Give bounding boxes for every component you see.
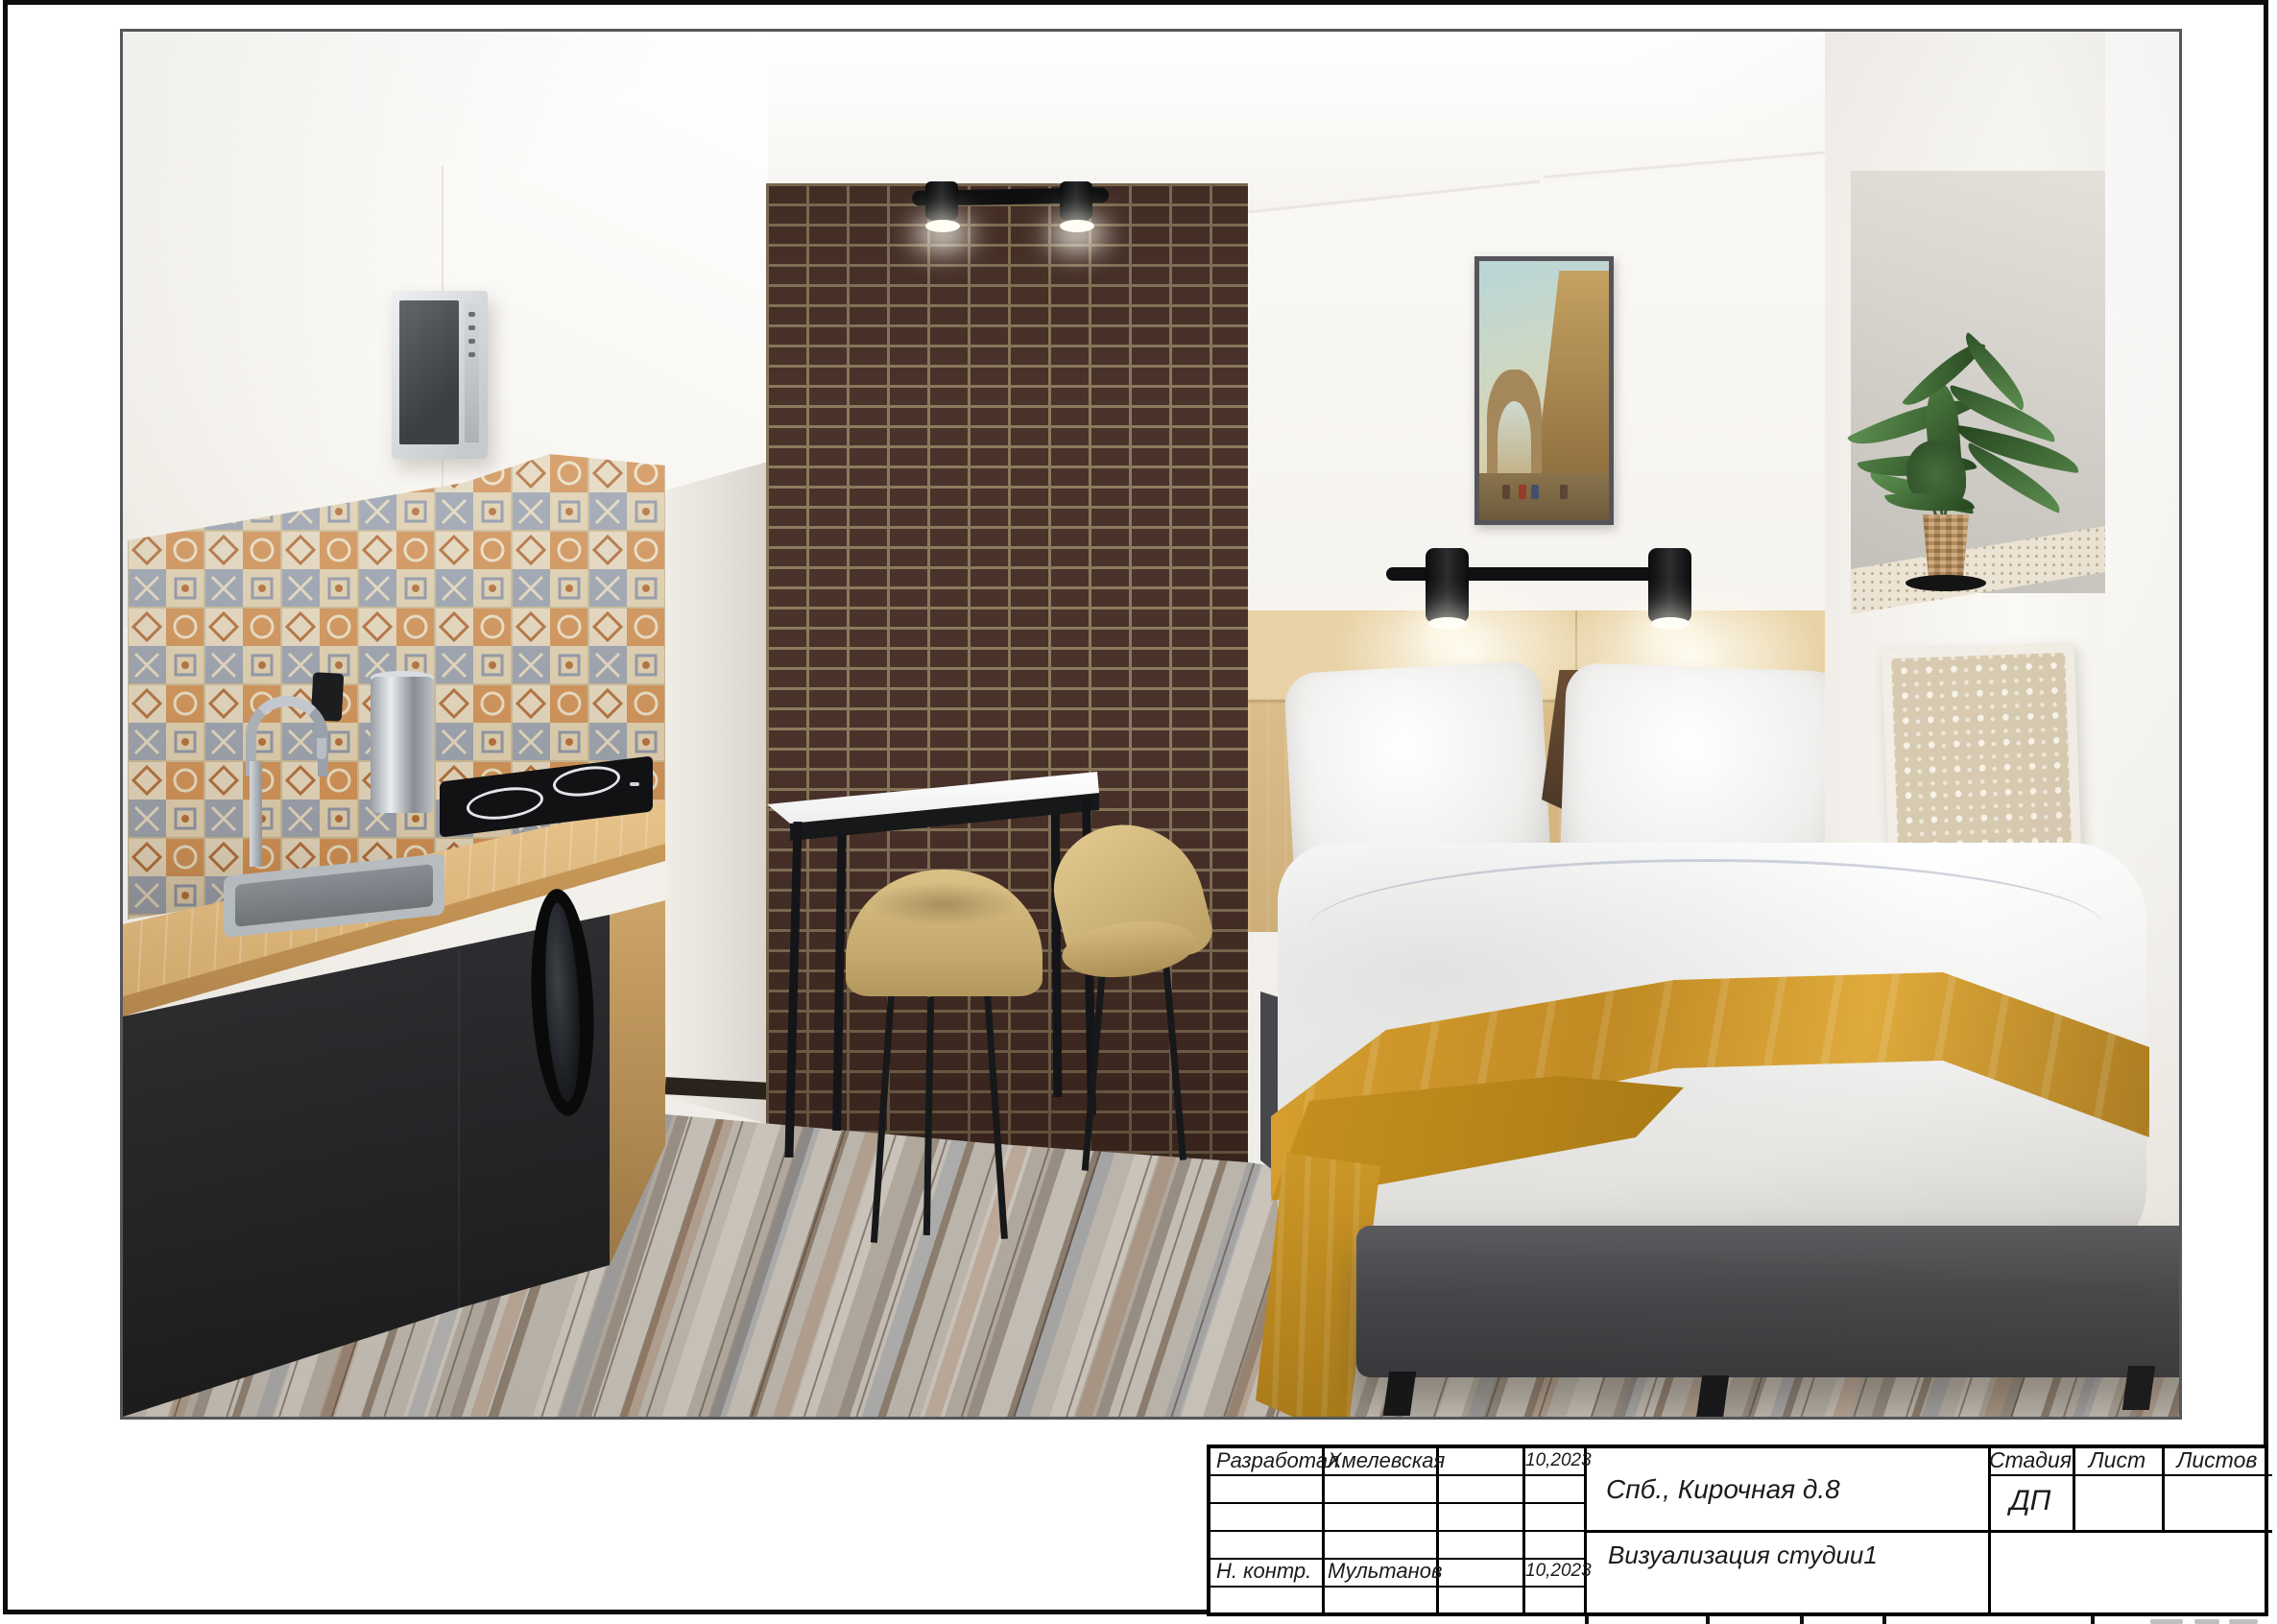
cut-row-tick bbox=[1585, 1615, 1589, 1624]
chair-left-shadow bbox=[867, 882, 1020, 926]
cut-row-tick bbox=[2091, 1615, 2095, 1624]
microwave-button bbox=[468, 312, 475, 317]
title-block-line bbox=[1210, 1586, 1584, 1588]
framed-painting bbox=[1474, 256, 1614, 525]
cut-text-fragment bbox=[2150, 1619, 2183, 1624]
kettle bbox=[371, 677, 434, 813]
cut-text-fragment bbox=[2229, 1619, 2258, 1624]
painting-figure bbox=[1560, 485, 1568, 499]
stage-header: Стадия bbox=[1988, 1448, 2073, 1474]
normcontrol-label: Н. контр. bbox=[1216, 1558, 1311, 1586]
spotlight-glow bbox=[1060, 220, 1094, 232]
normcontrol-name: Мультанов bbox=[1328, 1558, 1442, 1586]
painting-ground bbox=[1479, 473, 1609, 520]
title-block-line bbox=[1210, 1530, 1584, 1532]
painting-arch-opening bbox=[1498, 401, 1531, 479]
painting-figure bbox=[1519, 485, 1526, 499]
cut-text-fragment bbox=[2194, 1619, 2219, 1624]
drawing-sheet: Разработал Хмелевская 10,2023 Н. контр. … bbox=[0, 0, 2277, 1624]
corner-wall bbox=[665, 462, 768, 1124]
render-image bbox=[120, 29, 2182, 1420]
wall-lamp-spot bbox=[1426, 548, 1469, 623]
microwave-controls bbox=[465, 302, 479, 442]
wall-niche bbox=[1851, 171, 2105, 593]
track-spotlight bbox=[925, 181, 958, 220]
cut-row-tick bbox=[1706, 1615, 1710, 1624]
cut-row-tick bbox=[1800, 1615, 1804, 1624]
faucet-post bbox=[250, 761, 262, 867]
sheets-header: Листов bbox=[2162, 1448, 2272, 1474]
microwave-door bbox=[399, 300, 459, 444]
spotlight-glow bbox=[925, 220, 960, 232]
wall-lamp-light bbox=[1651, 617, 1690, 630]
sheet-header: Лист bbox=[2073, 1448, 2162, 1474]
microwave-button bbox=[468, 325, 475, 330]
cooktop-control bbox=[630, 782, 639, 786]
normcontrol-date: 10,2023 bbox=[1525, 1558, 1584, 1586]
title-block-line bbox=[1584, 1530, 2272, 1533]
developed-name: Хмелевская bbox=[1328, 1448, 1445, 1474]
sheet-title: Визуализация студии1 bbox=[1608, 1540, 1878, 1570]
object-address: Спб., Кирочная д.8 bbox=[1606, 1448, 1986, 1530]
painting-figure bbox=[1502, 485, 1510, 499]
microwave-button bbox=[468, 352, 475, 357]
bed-base bbox=[1356, 1226, 2182, 1377]
developed-label: Разработал bbox=[1216, 1448, 1339, 1474]
painting-ruins bbox=[1534, 271, 1609, 483]
plant-saucer bbox=[1905, 575, 1986, 591]
developed-date: 10,2023 bbox=[1525, 1448, 1584, 1474]
faucet-spout bbox=[317, 738, 326, 759]
title-block: Разработал Хмелевская 10,2023 Н. контр. … bbox=[1207, 1445, 2268, 1616]
title-block-line bbox=[1210, 1502, 1584, 1504]
wall-lamp-spot bbox=[1648, 548, 1691, 623]
track-spotlight bbox=[1060, 181, 1092, 220]
microwave-button bbox=[468, 339, 475, 344]
wall-lamp-light bbox=[1428, 617, 1467, 630]
stage-value: ДП bbox=[1988, 1474, 2073, 1530]
painting-figure bbox=[1531, 485, 1539, 499]
cabinet-door-seam bbox=[458, 951, 460, 1311]
cut-row-tick bbox=[1882, 1615, 1886, 1624]
title-block-line bbox=[1210, 1474, 1584, 1476]
